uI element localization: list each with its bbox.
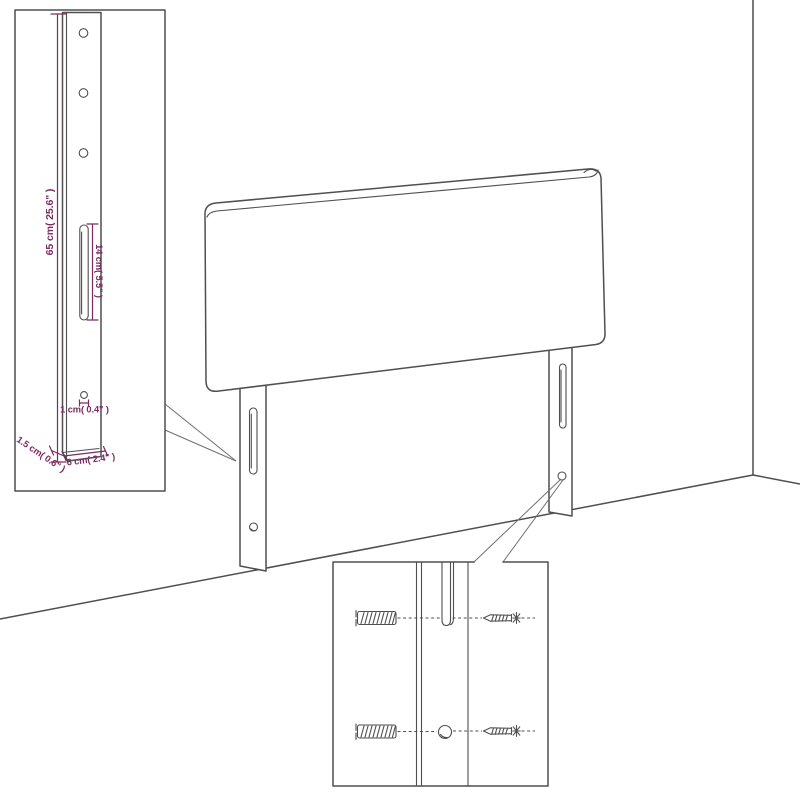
mounting-detail-inset [333, 562, 548, 786]
dimension-slot-label: 14 cm( 5.5" ) [94, 244, 104, 298]
callout-line-detail-left [474, 479, 561, 562]
screw-top-head [513, 613, 520, 624]
headboard-assembly-diagram: 65 cm( 25.6" ) 14 cm( 5.5" ) 1 cm( 0.4" … [0, 0, 800, 800]
dimension-height-label: 65 cm( 25.6" ) [44, 189, 56, 256]
callout-lines [165, 404, 563, 562]
callout-line-inset-bottom [165, 430, 236, 461]
callout-line-inset-top [165, 404, 236, 461]
leg-left-body [240, 382, 266, 571]
floor-line-right [753, 475, 800, 484]
headboard-leg-right [549, 338, 572, 516]
product-diagram-page: 65 cm( 25.6" ) 14 cm( 5.5" ) 1 cm( 0.4" … [0, 0, 800, 800]
mounting-inset-bg [333, 562, 548, 786]
headboard-panel [205, 169, 605, 391]
leg-detail-inset: 65 cm( 25.6" ) 14 cm( 5.5" ) 1 cm( 0.4" … [15, 10, 165, 491]
dimension-hole-label: 1 cm( 0.4" ) [60, 405, 109, 415]
inset-border [15, 10, 165, 491]
panel-outline [205, 169, 605, 391]
headboard-leg-left [240, 382, 266, 571]
screw-bottom-head [513, 726, 520, 737]
